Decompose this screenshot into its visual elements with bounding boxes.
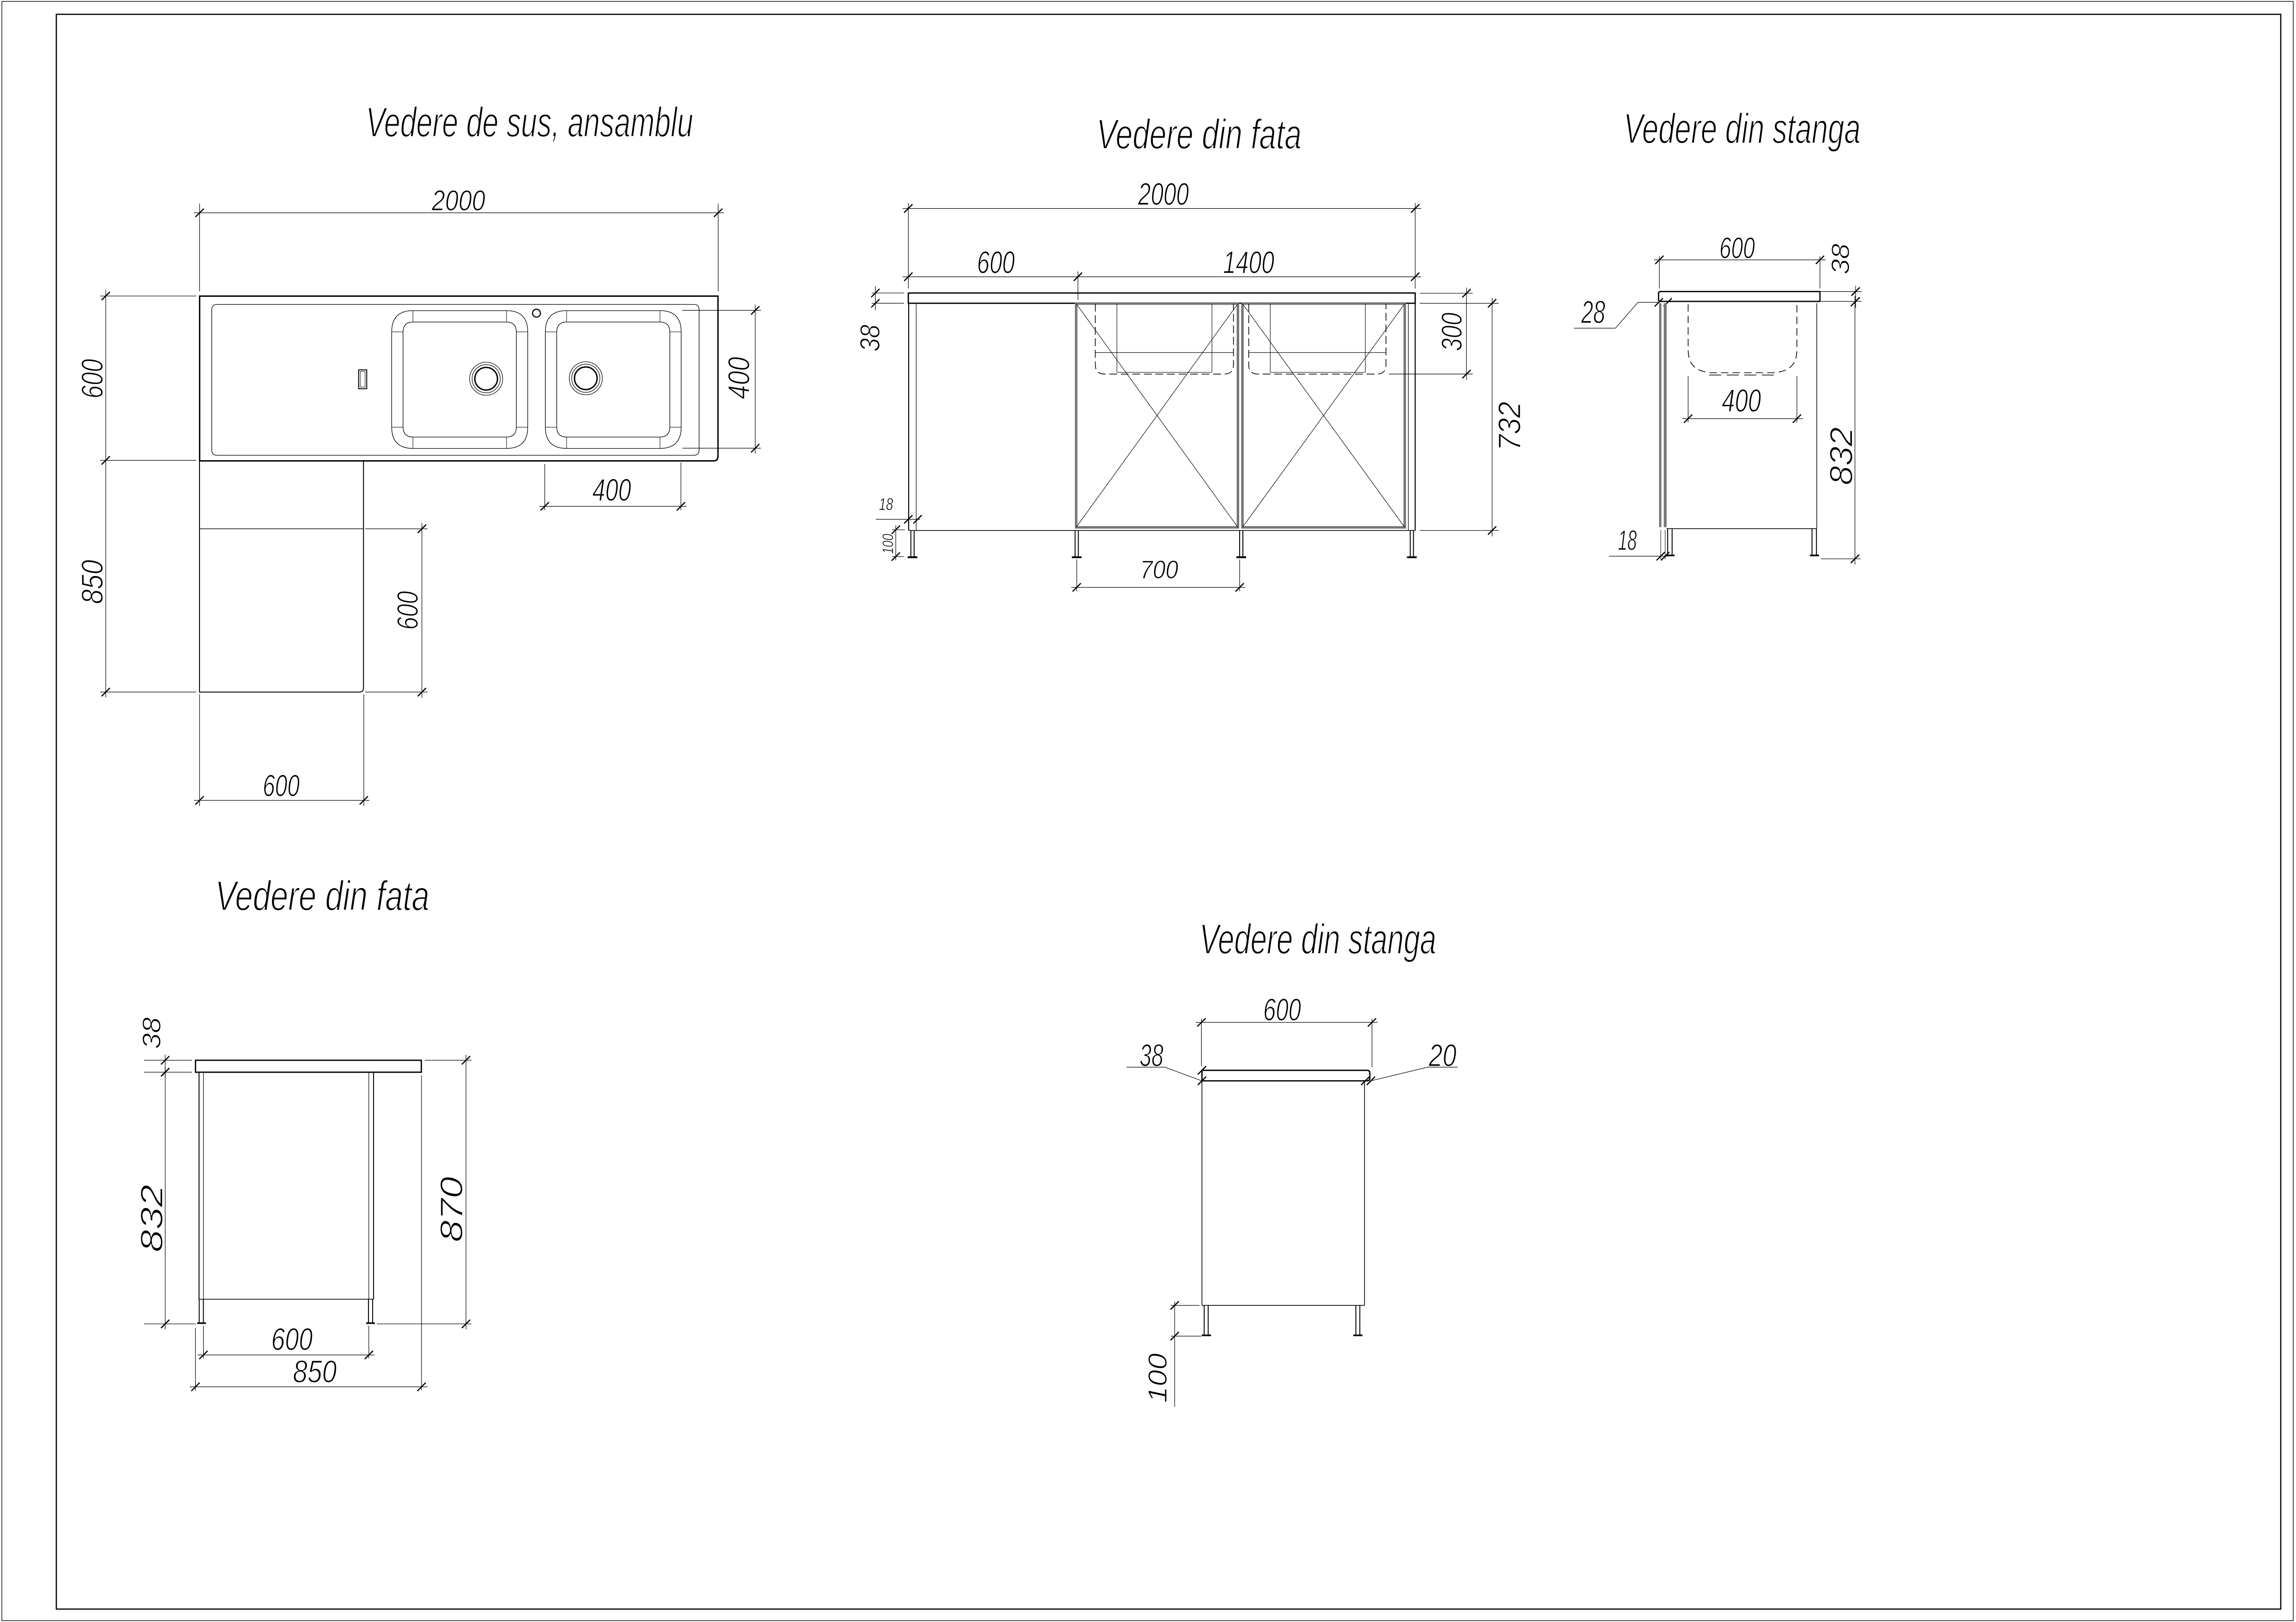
- svg-text:38: 38: [855, 324, 886, 352]
- svg-text:850: 850: [76, 560, 109, 604]
- svg-text:100: 100: [1143, 1353, 1173, 1403]
- svg-text:18: 18: [879, 494, 894, 514]
- svg-text:20: 20: [1428, 1038, 1457, 1074]
- svg-text:870: 870: [434, 1177, 469, 1242]
- svg-text:732: 732: [1492, 402, 1527, 451]
- svg-text:400: 400: [722, 357, 756, 399]
- svg-text:600: 600: [75, 359, 109, 399]
- svg-text:600: 600: [271, 1322, 313, 1358]
- svg-text:400: 400: [592, 472, 631, 507]
- svg-text:832: 832: [134, 1184, 169, 1252]
- svg-text:Vedere din fata: Vedere din fata: [215, 873, 429, 920]
- svg-text:600: 600: [1719, 231, 1755, 265]
- svg-text:38: 38: [138, 1017, 166, 1049]
- svg-text:Vedere din stanga: Vedere din stanga: [1624, 105, 1861, 152]
- svg-text:1400: 1400: [1223, 245, 1274, 280]
- svg-text:38: 38: [1139, 1038, 1163, 1073]
- svg-text:100: 100: [880, 534, 897, 554]
- svg-text:300: 300: [1436, 312, 1469, 351]
- svg-text:600: 600: [263, 769, 300, 803]
- svg-text:18: 18: [1618, 524, 1637, 556]
- svg-text:Vedere de sus, ansamblu: Vedere de sus, ansamblu: [366, 98, 693, 146]
- svg-text:600: 600: [977, 245, 1015, 280]
- svg-text:700: 700: [1140, 555, 1178, 584]
- svg-text:Vedere din fata: Vedere din fata: [1097, 110, 1302, 157]
- svg-text:2000: 2000: [1138, 176, 1189, 212]
- svg-text:400: 400: [1722, 383, 1761, 419]
- svg-text:28: 28: [1581, 294, 1605, 330]
- svg-text:850: 850: [293, 1354, 337, 1389]
- svg-text:832: 832: [1824, 427, 1860, 485]
- svg-text:600: 600: [1263, 992, 1301, 1027]
- svg-text:600: 600: [392, 591, 424, 630]
- svg-text:2000: 2000: [431, 185, 485, 217]
- svg-text:Vedere din stanga: Vedere din stanga: [1199, 916, 1436, 963]
- svg-text:38: 38: [1826, 244, 1855, 275]
